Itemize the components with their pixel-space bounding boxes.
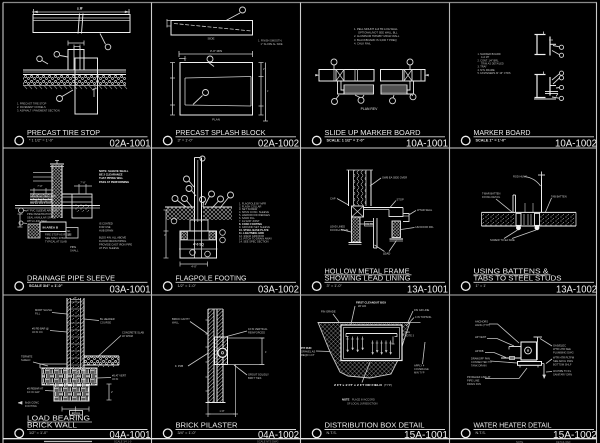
svg-text:GROUT SOLIDLY: GROUT SOLIDLY — [248, 373, 269, 377]
svg-text:2. PAVEMENT DOWELS: 2. PAVEMENT DOWELS — [17, 105, 46, 109]
svg-text:WATER HEATER DETAIL: WATER HEATER DETAIL — [474, 421, 552, 430]
svg-text:02A-1002: 02A-1002 — [258, 139, 299, 150]
svg-text:GWB EA SIDE OVER: GWB EA SIDE OVER — [382, 176, 407, 180]
svg-text:IS COATED: IS COATED — [99, 222, 113, 226]
svg-text:04A-1002: 04A-1002 — [258, 430, 299, 441]
svg-text:1" = 1': 1" = 1' — [476, 284, 487, 288]
svg-text:DISTRIBUTION BOX DETAIL: DISTRIBUTION BOX DETAIL — [325, 421, 425, 430]
svg-text:13A-1001: 13A-1001 — [407, 285, 448, 296]
svg-text:MARKER BOARD: MARKER BOARD — [474, 128, 531, 137]
svg-text:SHOWING LEAD LINING: SHOWING LEAD LINING — [325, 273, 411, 282]
svg-text:SANITARY DRN: SANITARY DRN — [553, 373, 572, 377]
svg-text:FLOOR DRAIN PIPING: FLOOR DRAIN PIPING — [99, 239, 126, 243]
svg-text:PROVIDE CAST IRON PIPE: PROVIDE CAST IRON PIPE — [99, 243, 132, 247]
svg-text:10A-1001: 10A-1001 — [406, 139, 448, 150]
svg-text:SCREW TO EA SIDE: SCREW TO EA SIDE — [490, 238, 515, 242]
svg-text:PLACE IN ACCORD: PLACE IN ACCORD — [352, 399, 375, 402]
svg-text:32 IN: 32 IN — [112, 377, 118, 381]
svg-text:SEE ARCH DWG: SEE ARCH DWG — [553, 359, 573, 363]
svg-text:SEE SPEC 07840: SEE SPEC 07840 — [45, 236, 66, 240]
svg-text:SLIDE UP MARKER BOARD: SLIDE UP MARKER BOARD — [325, 128, 421, 137]
svg-text:AT PVC SLEEVE: AT PVC SLEEVE — [99, 246, 119, 250]
svg-text:OPTIONAL/NOT SEE WALL BLL: OPTIONAL/NOT SEE WALL BLL — [358, 31, 398, 35]
svg-text:FIRST CLEANOUT BOX: FIRST CLEANOUT BOX — [356, 301, 386, 305]
svg-text:LEAD: LEAD — [383, 252, 390, 256]
svg-text:3. ASPHALT / PAVEMENT SECTION: 3. ASPHALT / PAVEMENT SECTION — [17, 109, 60, 113]
svg-text:3/4" = 1'-0": 3/4" = 1'-0" — [178, 431, 197, 435]
svg-text:16 OC EW: 16 OC EW — [27, 390, 40, 394]
svg-text:13A-1002: 13A-1002 — [556, 285, 597, 296]
svg-text:APPLY 4: APPLY 4 — [414, 364, 425, 368]
svg-text:TERMITE: TERMITE — [21, 355, 33, 359]
svg-text:BL HEADER: BL HEADER — [100, 317, 115, 321]
svg-text:2. ALUMINUM TRIM/BY MFGR WALL: 2. ALUMINUM TRIM/BY MFGR WALL — [354, 34, 400, 38]
svg-text:03A-1001: 03A-1001 — [110, 285, 151, 296]
svg-text:CONNECTED TO: CONNECTED TO — [471, 360, 492, 364]
svg-text:14. SEE SPEC SECTION: 14. SEE SPEC SECTION — [239, 240, 269, 244]
svg-text:MIN TYP: MIN TYP — [414, 371, 425, 375]
svg-text:15A-1002: 15A-1002 — [553, 430, 597, 441]
svg-text:CONCRETE SLAB: CONCRETE SLAB — [122, 331, 144, 335]
svg-text:#5 AT VERT: #5 AT VERT — [112, 374, 127, 378]
svg-text:NOTE 3: NOTE 3 — [405, 335, 415, 338]
svg-text:2": 2" — [263, 68, 265, 71]
svg-text:W/ WWM: W/ WWM — [122, 334, 133, 338]
svg-text:T-BAR BATTEN: T-BAR BATTEN — [482, 192, 501, 196]
svg-text:FIN GRADE: FIN GRADE — [321, 310, 336, 314]
svg-text:3'-0" MIN: 3'-0" MIN — [210, 49, 222, 53]
svg-text:WTR HTR SEE: WTR HTR SEE — [553, 347, 571, 351]
svg-text:BRICK WALL: BRICK WALL — [27, 421, 77, 430]
svg-text:DRAIN PAN: DRAIN PAN — [467, 382, 481, 386]
svg-text:REQD 1 FT: REQD 1 FT — [301, 353, 315, 357]
svg-text:HUB DRAIN: HUB DRAIN — [99, 229, 113, 233]
svg-text:4'-0 SQ: 4'-0 SQ — [193, 243, 204, 247]
svg-text:COURSE: COURSE — [100, 321, 111, 325]
svg-text:FOOTING: FOOTING — [25, 404, 37, 408]
svg-text:PIPE PENETRATION: PIPE PENETRATION — [27, 212, 52, 216]
svg-text:CAP: CAP — [330, 197, 336, 201]
svg-text:5. FASTENERS AT 16" CTRS: 5. FASTENERS AT 16" CTRS — [478, 72, 511, 75]
svg-text:FIRE STOP AS REQD: FIRE STOP AS REQD — [45, 233, 71, 237]
svg-text:* 1 1/2" = 1'-0": * 1 1/2" = 1'-0" — [29, 138, 54, 142]
svg-text:HM DOOR FRL: HM DOOR FRL — [416, 225, 435, 229]
svg-text:ANCHORS: ANCHORS — [475, 320, 488, 324]
svg-text:LEAD LINED: LEAD LINED — [330, 225, 345, 229]
svg-text:04A-1001: 04A-1001 — [110, 430, 151, 441]
svg-text:WTHR SEAL: WTHR SEAL — [417, 208, 433, 212]
svg-text:FOR USE: FOR USE — [99, 225, 111, 229]
svg-text:PRECAST TIRE STOP: PRECAST TIRE STOP — [27, 128, 100, 137]
svg-text:RIM EL 393.8 SET: RIM EL 393.8 SET — [30, 198, 52, 202]
svg-text:4 IN TOPSOIL: 4 IN TOPSOIL — [415, 315, 432, 319]
svg-text:3. BLACKBOARD IS 3,000 T PREQ: 3. BLACKBOARD IS 3,000 T PREQ — [354, 38, 397, 42]
svg-text:DRAWOFF PAN: DRAWOFF PAN — [471, 357, 490, 361]
svg-text:1/2" = 1'-0": 1/2" = 1'-0" — [29, 431, 48, 435]
svg-text:4'-0": 4'-0" — [191, 265, 197, 269]
svg-text:HM FR: HM FR — [366, 224, 374, 226]
svg-text:1'-8": 1'-8" — [219, 409, 224, 413]
svg-text:DOOR+FRAME: DOOR+FRAME — [330, 228, 349, 232]
svg-text:32 IN OC: 32 IN OC — [32, 330, 43, 334]
svg-text:HANG (TYP): HANG (TYP) — [475, 323, 490, 327]
svg-text:SCALE 3/4 1-0: SCALE 3/4 1-0 — [114, 440, 132, 443]
svg-text:IN AREA B: IN AREA B — [43, 226, 59, 230]
svg-text:TYPICAL AT SLAB: TYPICAL AT SLAB — [45, 240, 67, 244]
svg-text:PASS AT PERFORMING: PASS AT PERFORMING — [99, 180, 129, 184]
svg-text:NOTE: NOTE — [342, 398, 350, 402]
svg-text:REINFORCED: REINFORCED — [248, 331, 265, 335]
svg-text:PIT RUN: PIT RUN — [301, 346, 312, 350]
svg-text:3/4 PIPE TO FL: 3/4 PIPE TO FL — [553, 369, 572, 373]
svg-text:PIPE: PIPE — [70, 245, 76, 249]
svg-text:DRAINAGE PIPE SLEEVE: DRAINAGE PIPE SLEEVE — [27, 273, 115, 282]
svg-text:GRATE EL 394.2 TOP: GRATE EL 394.2 TOP — [30, 194, 56, 198]
svg-text:PLAN REV: PLAN REV — [361, 107, 379, 111]
svg-text:BOTTOM SHLF: BOTTOM SHLF — [553, 363, 572, 367]
svg-text:SHIELD: SHIELD — [21, 358, 30, 362]
svg-text:BE 2 CLEARANCE: BE 2 CLEARANCE — [99, 173, 123, 177]
svg-text:THAT PIPING WILL: THAT PIPING WILL — [99, 176, 123, 180]
svg-text:1/2" = 1'-0": 1/2" = 1'-0" — [178, 284, 197, 288]
svg-text:(TYP): (TYP) — [384, 383, 392, 387]
svg-text:SIDE: SIDE — [207, 37, 214, 41]
svg-text:16 IN VERTICAL: 16 IN VERTICAL — [248, 327, 268, 331]
svg-text:BLDG 4IN. ALL ABOVE: BLDG 4IN. ALL ABOVE — [99, 236, 126, 240]
svg-text:3" = 1'-0": 3" = 1'-0" — [178, 138, 194, 142]
svg-text:NOTE: SLEEVE SHALL: NOTE: SLEEVE SHALL — [99, 169, 129, 173]
svg-text:N.T.S.: N.T.S. — [327, 431, 337, 435]
svg-text:FLAGPOLE FOOTING: FLAGPOLE FOOTING — [176, 273, 247, 282]
svg-text:4" PVC SLEEVE AROUND: 4" PVC SLEEVE AROUND — [27, 209, 58, 213]
svg-text:N.T.S.: N.T.S. — [476, 431, 486, 435]
svg-text:TABS TO STEEL STUDS: TABS TO STEEL STUDS — [474, 273, 562, 282]
svg-text:15A-1001: 15A-1001 — [404, 430, 448, 441]
svg-text:7"-8": 7"-8" — [80, 182, 85, 185]
svg-text:FIXING DETAIL: FIXING DETAIL — [482, 195, 501, 199]
svg-text:MORT SLUSH: MORT SLUSH — [35, 308, 52, 312]
svg-text:TANK DRAIN: TANK DRAIN — [471, 364, 487, 368]
svg-text:7": 7" — [184, 57, 186, 61]
svg-text:8x16 CONC: 8x16 CONC — [25, 401, 39, 405]
svg-text:PLAN: PLAN — [212, 118, 220, 122]
svg-text:PLUMBING DWG: PLUMBING DWG — [553, 351, 574, 355]
svg-text:GAS/ELEC: GAS/ELEC — [553, 344, 566, 348]
svg-text:1. PELL MOUNT 1x4 TR.LOG WALL: 1. PELL MOUNT 1x4 TR.LOG WALL — [354, 27, 398, 31]
svg-text:BRKT TIES: BRKT TIES — [248, 376, 262, 380]
svg-text:2 FT x 2 FT x 2 FT DR FIELD: 2 FT x 2 FT x 2 FT DR FIELD — [334, 383, 383, 387]
svg-text:02A-1001: 02A-1001 — [110, 139, 151, 150]
svg-text:SHALL: SHALL — [70, 249, 79, 253]
svg-text:1. PRECAST TIRE STOP: 1. PRECAST TIRE STOP — [17, 102, 47, 106]
svg-text:SCALE 3/4" = 1'-0": SCALE 3/4" = 1'-0" — [29, 284, 63, 288]
svg-text:SCALE NTS DWG: SCALE NTS DWG — [257, 440, 278, 443]
svg-text:7"-8": 7"-8" — [37, 185, 42, 188]
svg-text:#5 REBAR AT: #5 REBAR AT — [27, 387, 44, 391]
svg-text:HP BIB: HP BIB — [475, 349, 484, 353]
svg-text:4. CHLK RAIL: 4. CHLK RAIL — [354, 41, 371, 45]
svg-text:BRICK CAVITY: BRICK CAVITY — [172, 317, 190, 321]
svg-text:#5 RE-BAR @: #5 RE-BAR @ — [32, 327, 49, 331]
svg-text:TAB BATTEN: TAB BATTEN — [551, 195, 567, 199]
svg-text:03A-1002: 03A-1002 — [258, 285, 299, 296]
svg-text:1. FINISH SMOOTH,: 1. FINISH SMOOTH, — [258, 39, 282, 43]
svg-text:HP VENT: HP VENT — [475, 335, 487, 339]
svg-text:STOP: STOP — [397, 198, 404, 202]
svg-text:10A-1002: 10A-1002 — [555, 139, 597, 150]
svg-text:SCALE: 1 1/2" = 1'-0": SCALE: 1 1/2" = 1'-0" — [327, 138, 365, 142]
svg-text:SCALE 1" = 1'-0": SCALE 1" = 1'-0" — [476, 138, 507, 142]
svg-text:GRAVEL AS: GRAVEL AS — [301, 350, 316, 354]
svg-text:1" SLOPE AL SIDE: 1" SLOPE AL SIDE — [261, 42, 283, 46]
svg-text:PIPE LINE: PIPE LINE — [467, 379, 480, 383]
svg-text:OF LOCAL JURISDICTION: OF LOCAL JURISDICTION — [347, 403, 378, 406]
svg-text:WTR HTR PLTFM: WTR HTR PLTFM — [553, 356, 574, 360]
svg-text:F. PJB: F. PJB — [175, 364, 183, 368]
svg-text:3" = 1'-0": 3" = 1'-0" — [327, 284, 343, 288]
svg-text:FIN GR LINE: FIN GR LINE — [414, 308, 430, 312]
svg-text:BRICK PILASTER: BRICK PILASTER — [176, 421, 238, 430]
svg-text:PRECAST SPLASH BLOCK: PRECAST SPLASH BLOCK — [176, 128, 266, 137]
svg-text:INV EL 391.6 OUT: INV EL 391.6 OUT — [30, 201, 52, 205]
svg-text:FILL: FILL — [35, 312, 41, 316]
svg-text:SEAL ANNULAR SPACE: SEAL ANNULAR SPACE — [27, 216, 56, 220]
svg-text:W/ LID: W/ LID — [358, 304, 366, 308]
svg-text:COVERAGE: COVERAGE — [414, 367, 429, 371]
svg-text:WALL: WALL — [172, 321, 180, 325]
